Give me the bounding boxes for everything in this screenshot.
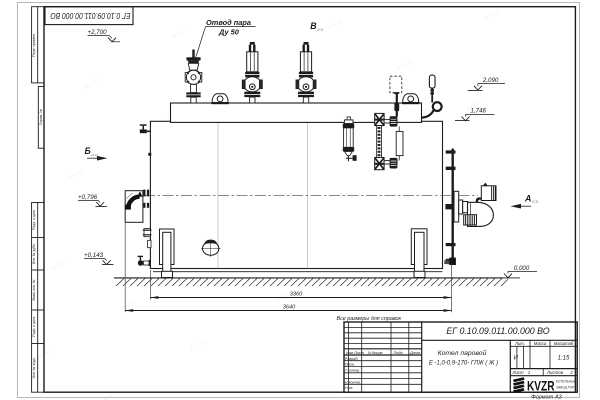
svg-text:Формат А3: Формат А3 — [531, 394, 562, 400]
svg-text:Подп.: Подп. — [394, 351, 404, 355]
svg-text:2: 2 — [569, 370, 573, 375]
svg-text:+0,143: +0,143 — [84, 252, 104, 259]
svg-text:А: А — [524, 193, 531, 203]
svg-text:3640: 3640 — [283, 304, 296, 310]
svg-text:КОТЕЛЬНЫЙ: КОТЕЛЬНЫЙ — [556, 380, 577, 384]
svg-text:N докум.: N докум. — [368, 351, 383, 355]
svg-text:(2:1): (2:1) — [532, 200, 538, 204]
svg-text:Б: Б — [85, 146, 91, 156]
svg-text:ЕГ 0.10.09.011.00.000 ВО: ЕГ 0.10.09.011.00.000 ВО — [446, 326, 549, 336]
svg-text:ЕГ 0.10.09.011.00.000 ВО: ЕГ 0.10.09.011.00.000 ВО — [51, 11, 131, 20]
svg-text:Инв. № подл.: Инв. № подл. — [32, 357, 36, 378]
svg-text:0,000: 0,000 — [514, 265, 530, 272]
svg-text:Е -1,0-0,9-170- ГЛЖ ( Ж ): Е -1,0-0,9-170- ГЛЖ ( Ж ) — [429, 360, 498, 366]
svg-text:1,746: 1,746 — [471, 107, 487, 114]
svg-text:Масштаб: Масштаб — [554, 341, 574, 346]
svg-text:+0,796: +0,796 — [78, 194, 98, 201]
svg-text:Изм Лист: Изм Лист — [346, 351, 364, 355]
svg-text:Подп. и дата: Подп. и дата — [32, 317, 36, 337]
svg-text:Дата: Дата — [409, 351, 420, 355]
svg-text:ЗАВОД РЭП: ЗАВОД РЭП — [556, 386, 575, 390]
svg-text:2,090: 2,090 — [482, 77, 499, 84]
svg-text:+2,700: +2,700 — [88, 29, 108, 36]
svg-text:Листов: Листов — [546, 370, 564, 375]
svg-text:KVZR: KVZR — [527, 377, 555, 393]
svg-text:3360: 3360 — [290, 292, 303, 298]
svg-text:Подп. и дата: Подп. и дата — [32, 210, 36, 230]
svg-text:Справ. №: Справ. № — [39, 109, 43, 125]
svg-text:Разраб.: Разраб. — [345, 357, 359, 361]
svg-text:Котел паровой: Котел паровой — [438, 349, 487, 357]
svg-text:Взам. инв. №: Взам. инв. № — [32, 279, 36, 300]
svg-text:Перв. примен.: Перв. примен. — [32, 33, 36, 57]
svg-text:Все размеры для справок: Все размеры для справок — [337, 316, 402, 322]
svg-text:Н.контр.: Н.контр. — [345, 380, 361, 384]
svg-text:(2:1): (2:1) — [91, 153, 97, 157]
svg-text:Отвод пара: Отвод пара — [206, 18, 251, 27]
svg-text:Пров.: Пров. — [345, 363, 355, 367]
svg-text:1:15: 1:15 — [558, 356, 570, 362]
svg-text:Лит.: Лит. — [514, 341, 525, 346]
svg-text:И: И — [514, 356, 519, 362]
svg-text:(2:1): (2:1) — [317, 28, 323, 32]
svg-text:Инв. № дубл.: Инв. № дубл. — [32, 243, 36, 264]
svg-text:Масса: Масса — [534, 341, 547, 346]
svg-text:Т.контр.: Т.контр. — [345, 369, 360, 373]
svg-text:Лист: Лист — [511, 370, 524, 375]
svg-text:Утв.: Утв. — [345, 386, 354, 390]
svg-text:Ду 50: Ду 50 — [218, 28, 240, 37]
